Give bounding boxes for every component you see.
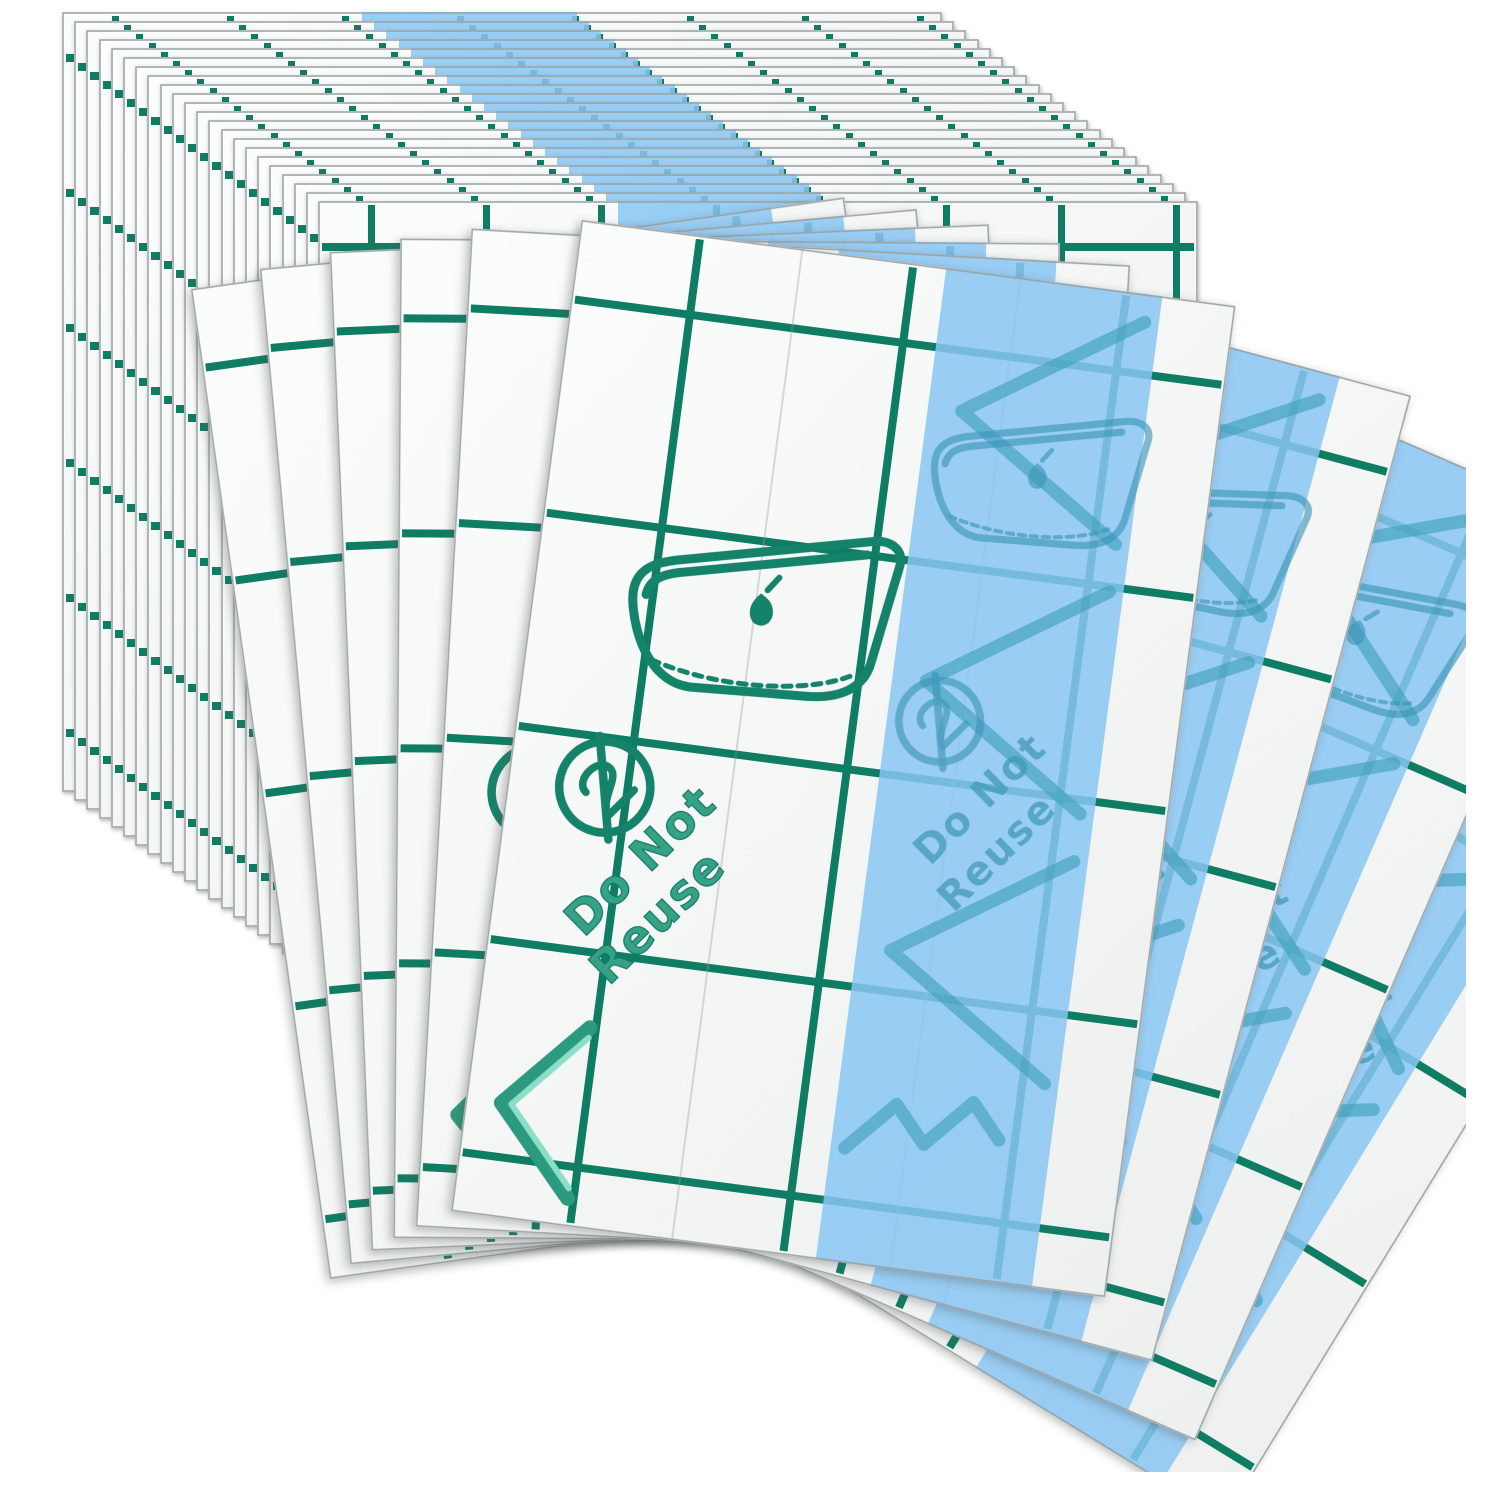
sheet-face	[451, 220, 1236, 1298]
transfer-sheet-fanned	[451, 220, 1236, 1298]
canvas-margin	[0, 1472, 1500, 1500]
product-photo-canvas	[0, 0, 1500, 1500]
canvas-margin	[1466, 0, 1500, 1500]
